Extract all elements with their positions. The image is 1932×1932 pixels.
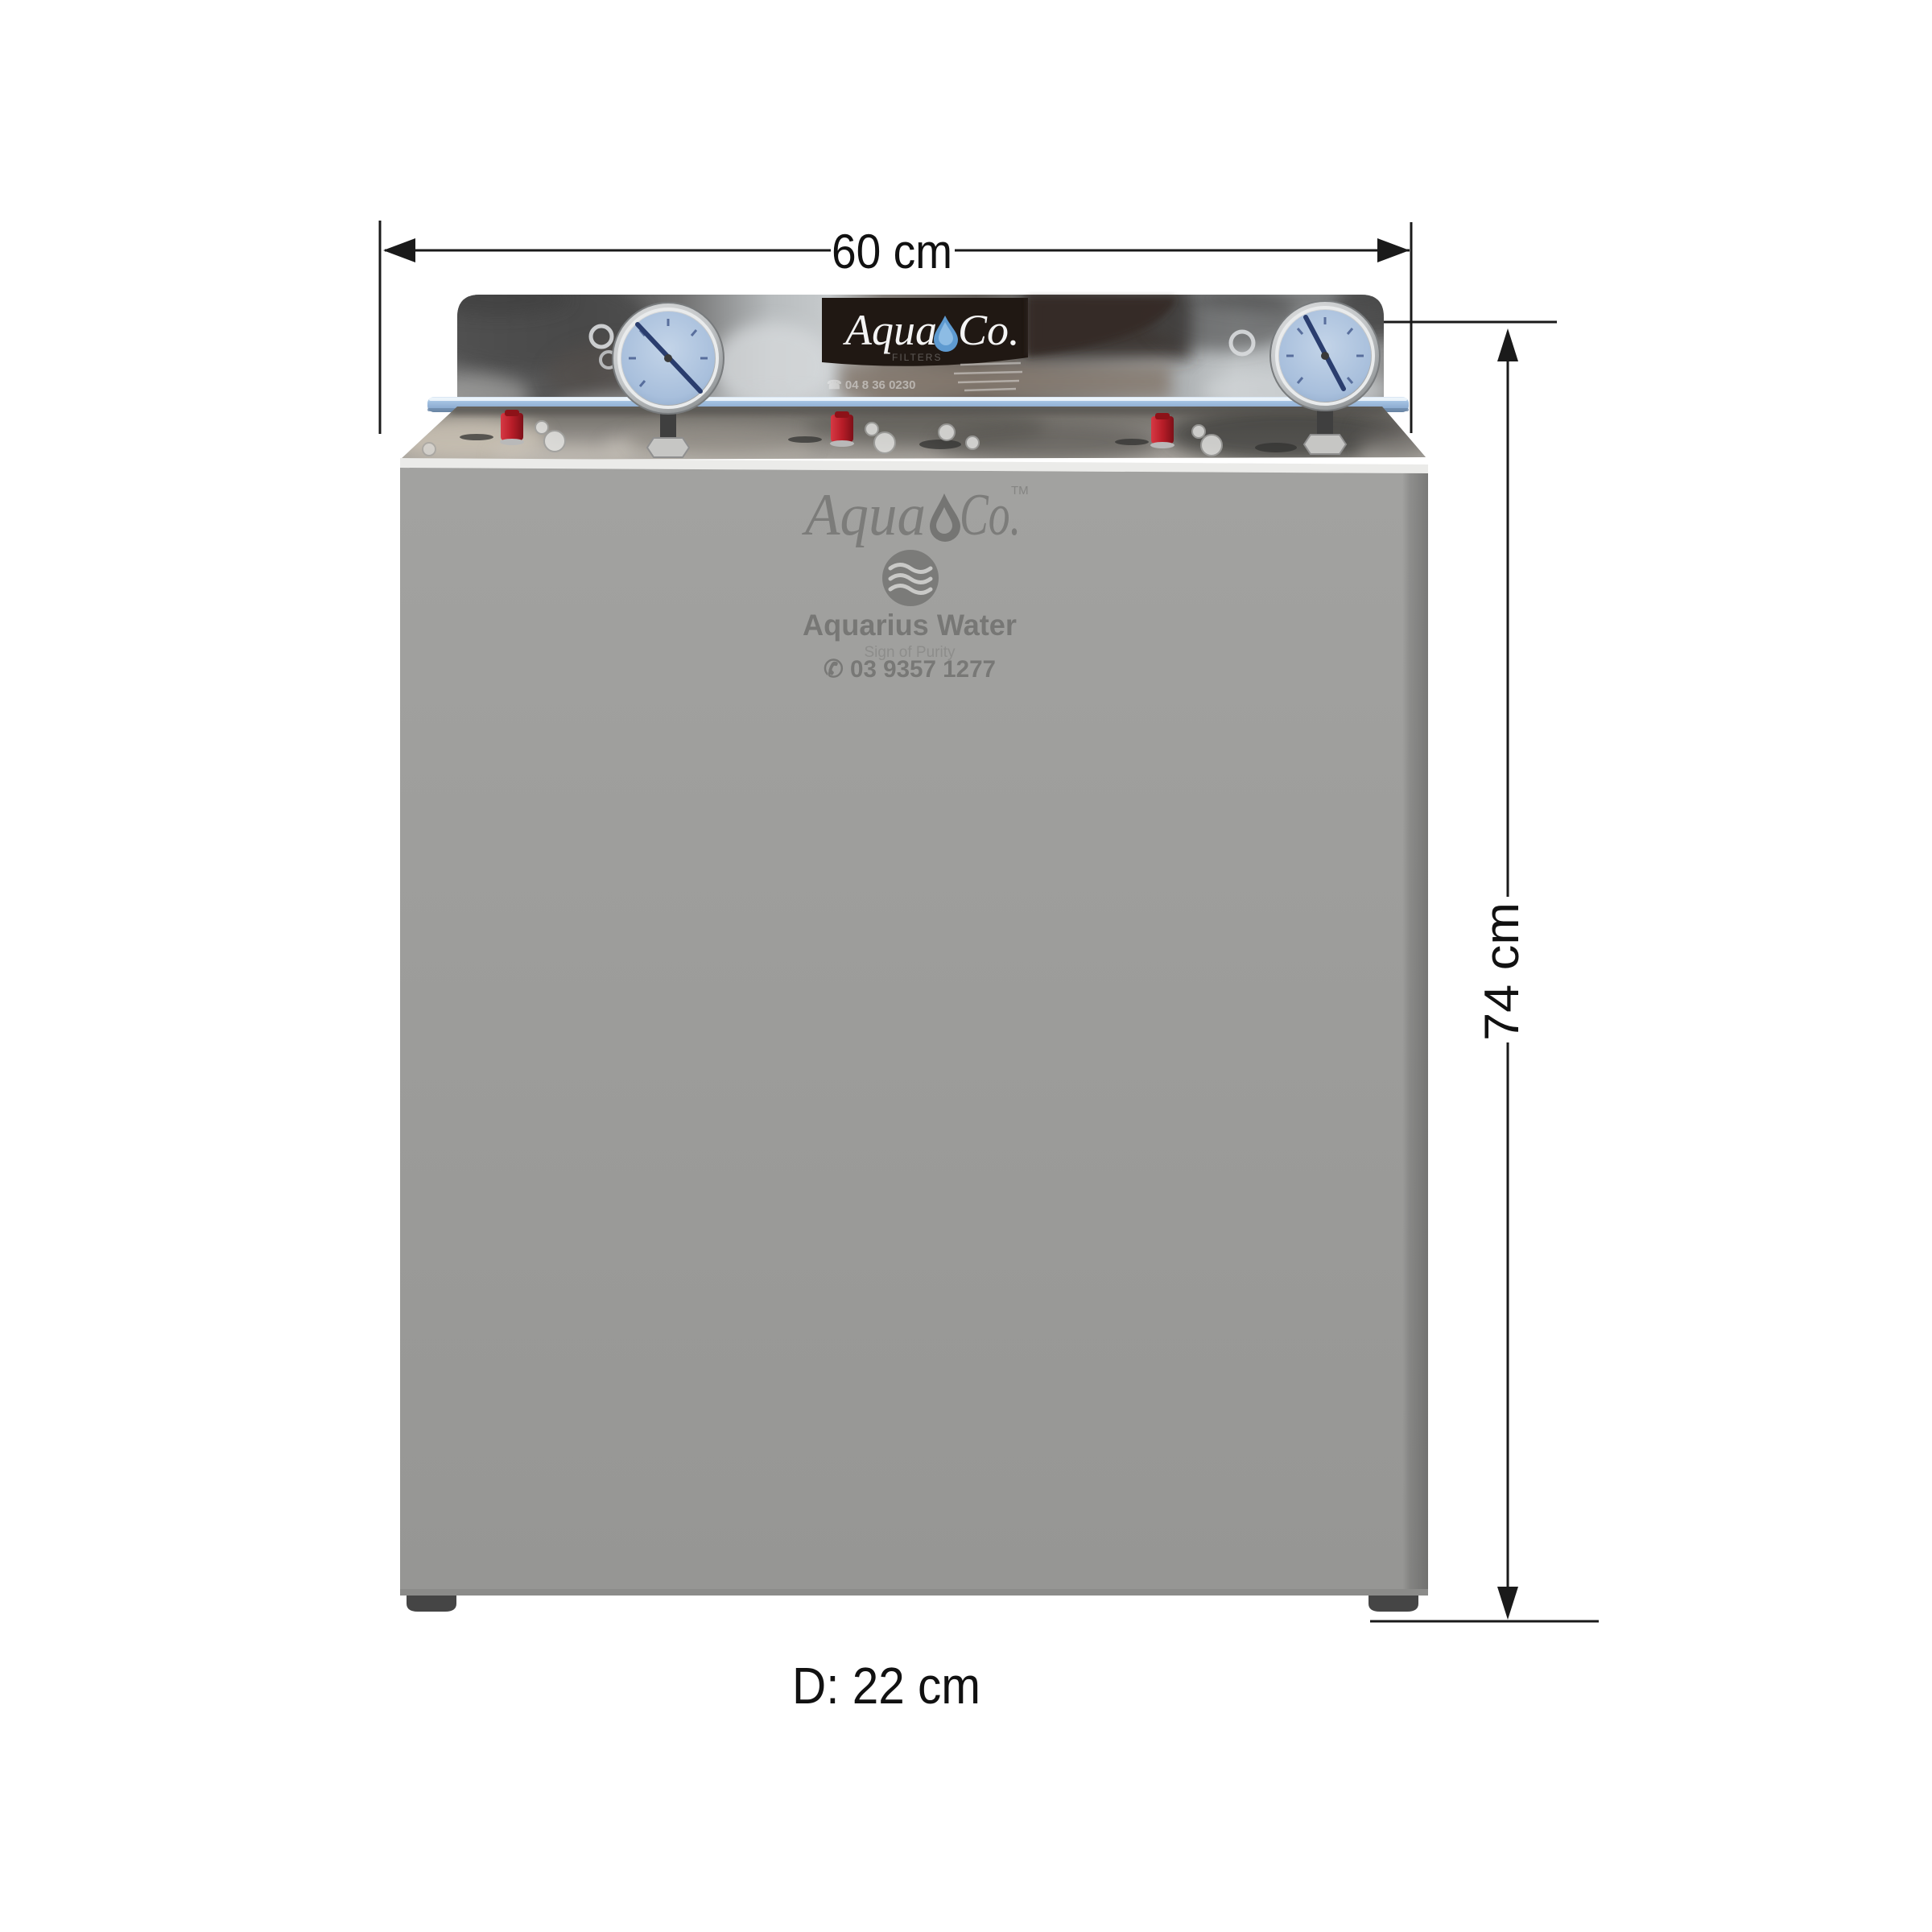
svg-text:Aquarius Water: Aquarius Water [803, 609, 1017, 642]
svg-text:Co.: Co. [958, 306, 1020, 354]
svg-text:74 cm: 74 cm [1475, 902, 1529, 1041]
svg-text:FILTERS: FILTERS [892, 352, 942, 363]
svg-text:TM: TM [1011, 484, 1029, 497]
svg-text:☎ 04 8 36 0230: ☎ 04 8 36 0230 [827, 378, 915, 392]
svg-text:Aqua: Aqua [801, 482, 926, 548]
svg-text:✆ 03 9357 1277: ✆ 03 9357 1277 [824, 656, 996, 683]
svg-text:60 cm: 60 cm [832, 225, 952, 279]
svg-text:Aqua: Aqua [843, 306, 937, 354]
svg-text:D: 22 cm: D: 22 cm [792, 1657, 980, 1715]
